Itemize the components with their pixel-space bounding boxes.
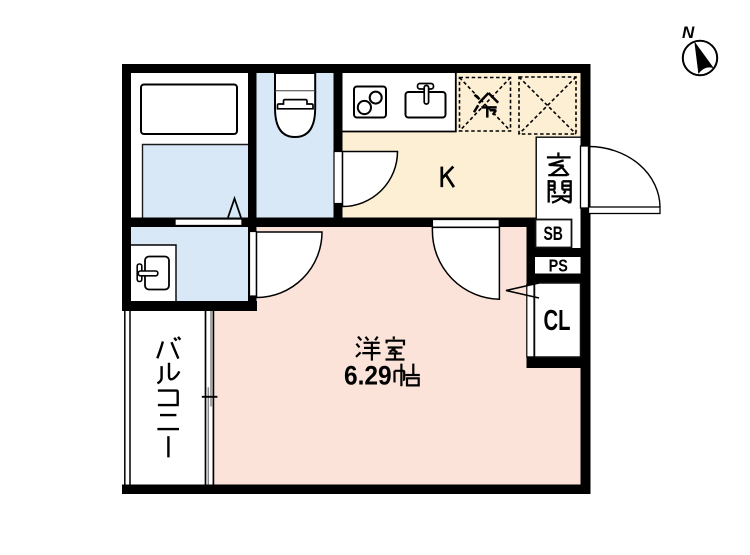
svg-text:6.29: 6.29 bbox=[344, 360, 392, 390]
svg-text:CL: CL bbox=[544, 305, 571, 337]
svg-text:N: N bbox=[682, 23, 695, 42]
svg-text:SB: SB bbox=[543, 224, 563, 245]
svg-text:PS: PS bbox=[549, 256, 568, 276]
